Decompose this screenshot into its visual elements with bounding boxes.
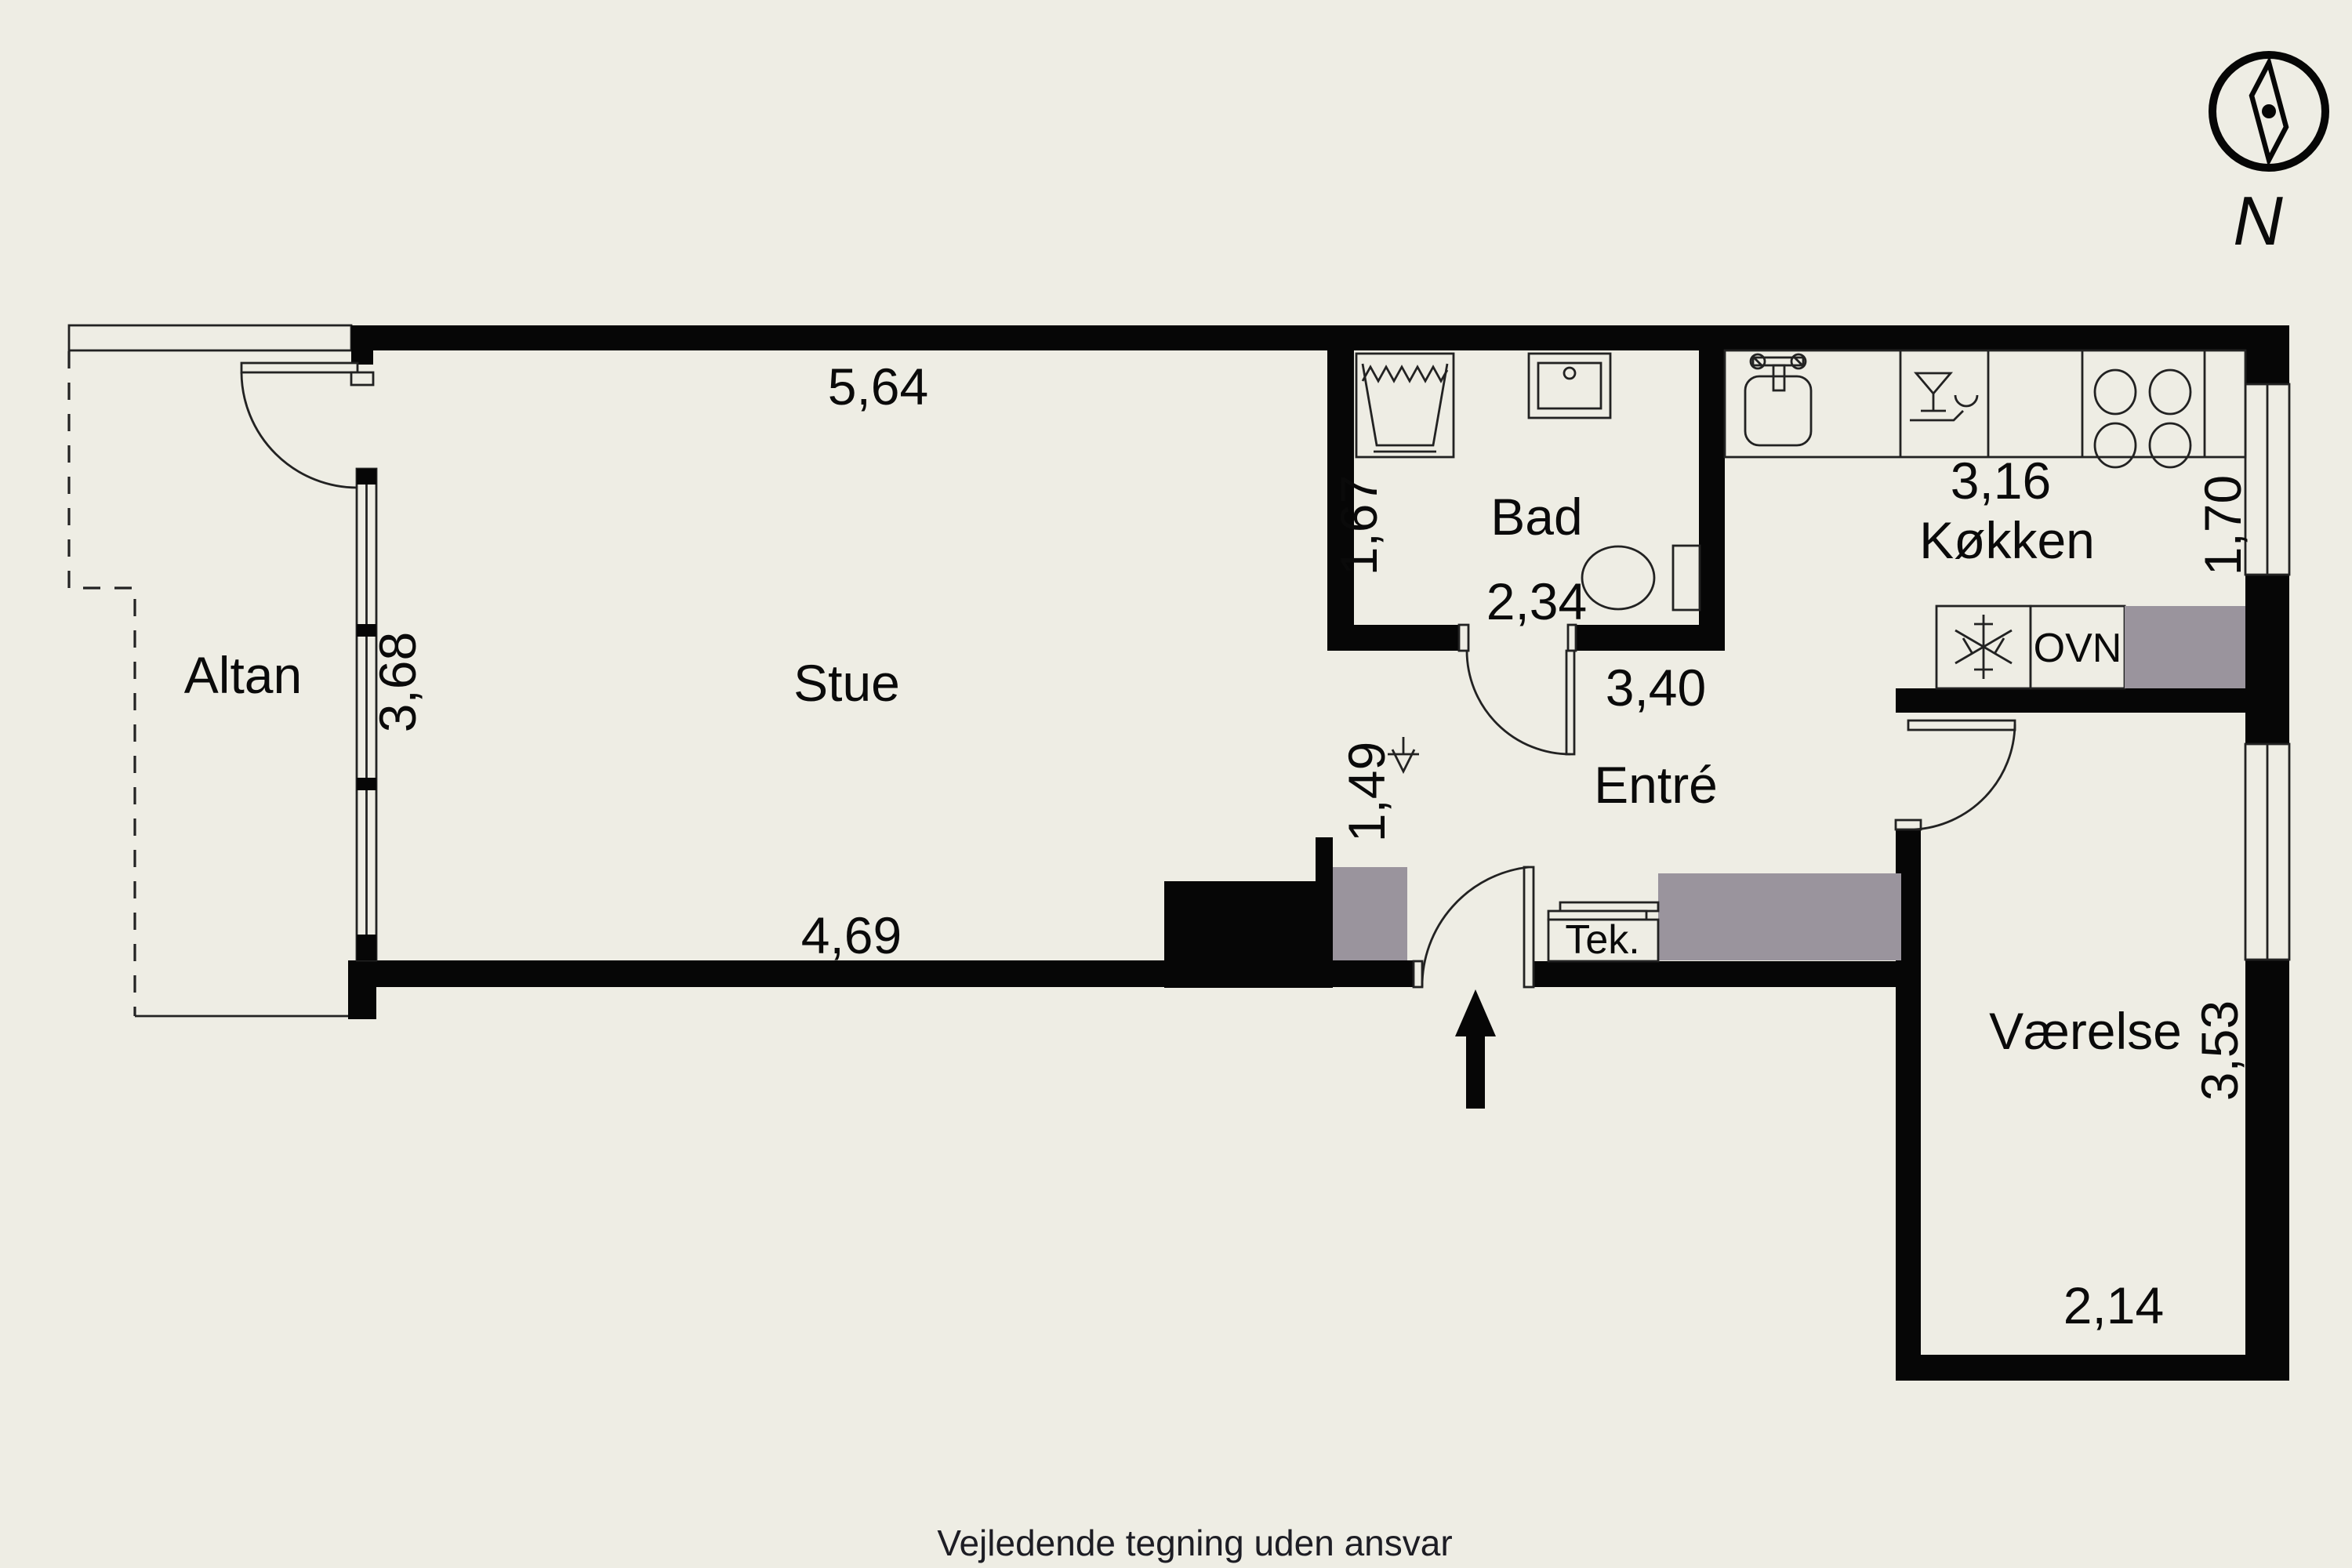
room-label-bad: Bad bbox=[1490, 488, 1582, 546]
dim-vaerelse-depth: 3,53 bbox=[2190, 1000, 2249, 1101]
fridge-icon bbox=[1936, 606, 2031, 688]
washing-machine-icon bbox=[1356, 354, 1454, 457]
window-stue-mullion-2 bbox=[357, 778, 376, 790]
compass-pivot-icon bbox=[2262, 104, 2276, 118]
door-bad-swing bbox=[1467, 651, 1570, 754]
window-stue-cap-bottom bbox=[357, 935, 376, 960]
door-balcony-frame bbox=[351, 372, 373, 385]
door-bad-leaf bbox=[1566, 651, 1574, 754]
room-label-altan: Altan bbox=[184, 646, 302, 704]
wall-right-top-corner bbox=[2245, 350, 2289, 384]
dim-stue-top: 5,64 bbox=[828, 358, 928, 416]
wall-right-bottom bbox=[2245, 960, 2289, 1381]
room-label-vaerelse: Værelse bbox=[1989, 1002, 2182, 1060]
balcony-railing bbox=[69, 325, 351, 350]
room-label-entre: Entré bbox=[1594, 756, 1718, 814]
dim-stue-depth: 3,68 bbox=[368, 632, 426, 732]
labels: 5,64 Stue 3,68 4,69 1,67 Bad 2,34 3,40 E… bbox=[368, 358, 2252, 1334]
room-label-kokken: Køkken bbox=[1919, 511, 2095, 569]
compass: N bbox=[2212, 55, 2325, 260]
dim-entre-passage: 1,49 bbox=[1338, 742, 1396, 842]
wall-right-middle bbox=[2245, 575, 2289, 744]
balcony-boundary-dashed bbox=[69, 351, 135, 1016]
dim-bad-width: 2,34 bbox=[1486, 572, 1587, 630]
dim-kokken-width: 3,16 bbox=[1951, 452, 2051, 510]
tek-closet: Tek. bbox=[1548, 902, 1658, 963]
balcony-altan: Altan bbox=[69, 325, 351, 1016]
door-entrance-swing bbox=[1422, 867, 1529, 987]
wall-top bbox=[351, 325, 2289, 350]
compass-north-label: N bbox=[2233, 182, 2283, 260]
wardrobe-left bbox=[1333, 867, 1407, 960]
dim-bad-depth: 1,67 bbox=[1330, 475, 1388, 575]
wall-stue-corner-block bbox=[348, 960, 376, 1019]
wall-bad-east bbox=[1699, 350, 1725, 651]
tek-closet-door-upper bbox=[1560, 902, 1658, 911]
room-label-tek: Tek. bbox=[1565, 917, 1639, 963]
wardrobe-right bbox=[1658, 873, 1901, 960]
entre-furniture: Tek. bbox=[1333, 867, 1901, 963]
dim-kokken-depth: 1,70 bbox=[2194, 475, 2252, 575]
footer-disclaimer: Vejledende tegning uden ansvar bbox=[937, 1523, 1452, 1563]
door-vaerelse-frame bbox=[1896, 820, 1921, 829]
door-vaerelse-swing bbox=[1915, 724, 2015, 829]
dim-vaerelse-width: 2,14 bbox=[2063, 1276, 2164, 1334]
dim-stue-bottom: 4,69 bbox=[801, 906, 902, 964]
wall-bad-bottom-left bbox=[1327, 625, 1459, 651]
wall-entre-bottom bbox=[1530, 961, 1921, 987]
wall-passage-stub bbox=[1316, 837, 1333, 881]
toilet-icon bbox=[1582, 546, 1700, 610]
wall-kitchen-band bbox=[1896, 688, 2245, 713]
dim-entre-width: 3,40 bbox=[1606, 659, 1706, 717]
door-balcony-swing bbox=[241, 372, 358, 488]
door-entrance-frame bbox=[1414, 961, 1422, 987]
door-balcony-leaf bbox=[241, 363, 358, 372]
wall-chimney-block bbox=[1164, 881, 1333, 988]
oven-label: OVN bbox=[2034, 626, 2122, 671]
window-stue-cap-top bbox=[357, 469, 376, 485]
door-bad-frame-left bbox=[1459, 625, 1468, 651]
bathroom-sink-icon bbox=[1529, 354, 1610, 418]
entrance-arrow-icon bbox=[1455, 989, 1496, 1109]
floorplan-canvas: N Altan bbox=[0, 0, 2352, 1568]
door-vaerelse-leaf bbox=[1908, 720, 2015, 730]
wall-vaerelse-bottom bbox=[1896, 1355, 2289, 1381]
door-entrance-leaf bbox=[1524, 867, 1534, 987]
kitchen-worktop-gray bbox=[2125, 606, 2245, 688]
room-label-stue: Stue bbox=[793, 654, 900, 712]
